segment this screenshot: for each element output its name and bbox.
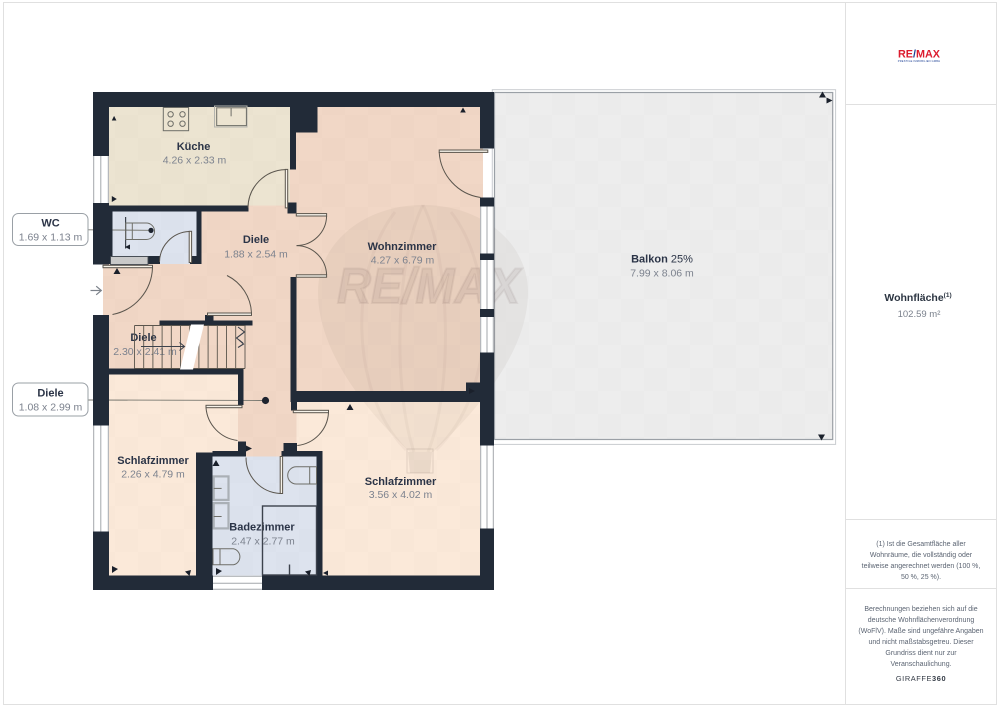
svg-text:3.56 x 4.02 m: 3.56 x 4.02 m — [369, 489, 433, 501]
svg-text:Grundriss dient nur zur: Grundriss dient nur zur — [885, 650, 957, 657]
svg-text:Wohnräume, die vollständig ode: Wohnräume, die vollständig oder — [870, 552, 973, 559]
svg-text:Berechnungen beziehen sich auf: Berechnungen beziehen sich auf die — [864, 606, 977, 613]
svg-text:50 %, 25 %).: 50 %, 25 %). — [901, 574, 941, 581]
svg-text:Schlafzimmer: Schlafzimmer — [365, 476, 437, 488]
svg-text:7.99 x 8.06 m: 7.99 x 8.06 m — [630, 268, 694, 280]
svg-text:Balkon 25%: Balkon 25% — [631, 254, 693, 266]
svg-text:Schlafzimmer: Schlafzimmer — [117, 455, 189, 467]
svg-text:1.08 x 2.99 m: 1.08 x 2.99 m — [19, 402, 83, 414]
svg-text:RE/MAX: RE/MAX — [898, 49, 941, 61]
svg-text:2.30 x 2.41 m: 2.30 x 2.41 m — [113, 346, 177, 358]
svg-text:Veranschaulichung.: Veranschaulichung. — [890, 661, 951, 668]
svg-text:WC: WC — [41, 218, 59, 230]
svg-text:2.26 x 4.79 m: 2.26 x 4.79 m — [121, 469, 185, 481]
svg-text:Wohnzimmer: Wohnzimmer — [368, 241, 438, 253]
svg-text:PRESTIGE IMMOBILIEN GMBH: PRESTIGE IMMOBILIEN GMBH — [898, 59, 940, 63]
svg-text:Diele: Diele — [37, 388, 63, 400]
svg-text:teilweise angerechnet werden (: teilweise angerechnet werden (100 %, — [862, 563, 981, 570]
svg-text:Küche: Küche — [177, 141, 211, 153]
svg-text:Diele: Diele — [243, 234, 269, 246]
svg-text:deutsche Wohnflächenverordnung: deutsche Wohnflächenverordnung — [868, 617, 975, 624]
svg-text:4.26 x 2.33 m: 4.26 x 2.33 m — [163, 155, 227, 167]
svg-text:1.88 x 2.54 m: 1.88 x 2.54 m — [224, 249, 288, 261]
svg-text:Wohnfläche(1): Wohnfläche(1) — [884, 292, 951, 304]
svg-text:(1) Ist die Gesamtfläche aller: (1) Ist die Gesamtfläche aller — [876, 541, 966, 548]
svg-text:102.59 m²: 102.59 m² — [898, 309, 941, 320]
svg-text:4.27 x 6.79 m: 4.27 x 6.79 m — [371, 255, 435, 267]
svg-text:und nicht maßstabsgetreu. Dies: und nicht maßstabsgetreu. Dieser — [868, 639, 974, 646]
svg-text:GIRAFFE360: GIRAFFE360 — [896, 674, 946, 683]
svg-text:1.69 x 1.13 m: 1.69 x 1.13 m — [19, 232, 83, 244]
svg-text:(WoFlV). Maße sind ungefähre A: (WoFlV). Maße sind ungefähre Angaben — [858, 628, 983, 635]
